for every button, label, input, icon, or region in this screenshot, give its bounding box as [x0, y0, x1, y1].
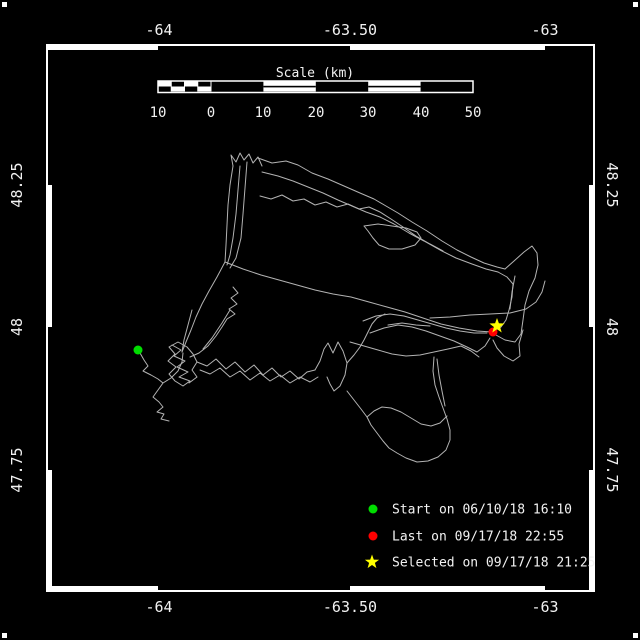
- right-axis-label: 48: [603, 318, 621, 336]
- scale-label: 10: [150, 105, 167, 121]
- bottom-axis-label: -63: [531, 598, 558, 616]
- scale-label: 10: [255, 105, 272, 121]
- corner-mark: [2, 633, 7, 638]
- corner-mark: [633, 2, 638, 7]
- top-axis-label: -64: [145, 21, 172, 39]
- left-axis-label: 47.75: [8, 447, 26, 492]
- legend-start-label: Start on 06/10/18 16:10: [392, 503, 572, 518]
- right-axis-label: 48.25: [603, 162, 621, 207]
- right-axis-label: 47.75: [603, 447, 621, 492]
- legend-selected-label: Selected on 09/17/18 21:25: [392, 556, 596, 571]
- scale-label: 20: [308, 105, 325, 121]
- scale-bar-title: Scale (km): [276, 66, 354, 81]
- scale-label: 50: [465, 105, 482, 121]
- left-axis-label: 48: [8, 318, 26, 336]
- bottom-axis-label: -63.50: [323, 598, 377, 616]
- legend-start-icon: [369, 505, 378, 514]
- scale-label: 0: [207, 105, 215, 121]
- legend: Start on 06/10/18 16:10 Last on 09/17/18…: [365, 503, 596, 571]
- bottom-axis-label: -64: [145, 598, 172, 616]
- scale-label: 30: [360, 105, 377, 121]
- scale-label: 40: [413, 105, 430, 121]
- start-marker: [134, 346, 143, 355]
- corner-mark: [633, 633, 638, 638]
- legend-last-label: Last on 09/17/18 22:55: [392, 530, 564, 545]
- corner-mark: [2, 2, 7, 7]
- left-axis-label: 48.25: [8, 162, 26, 207]
- tracking-map: Scale (km) 1001020304050 -64-63.50-63-64…: [0, 0, 640, 640]
- top-axis-label: -63: [531, 21, 558, 39]
- legend-last-icon: [369, 532, 378, 541]
- top-axis-label: -63.50: [323, 21, 377, 39]
